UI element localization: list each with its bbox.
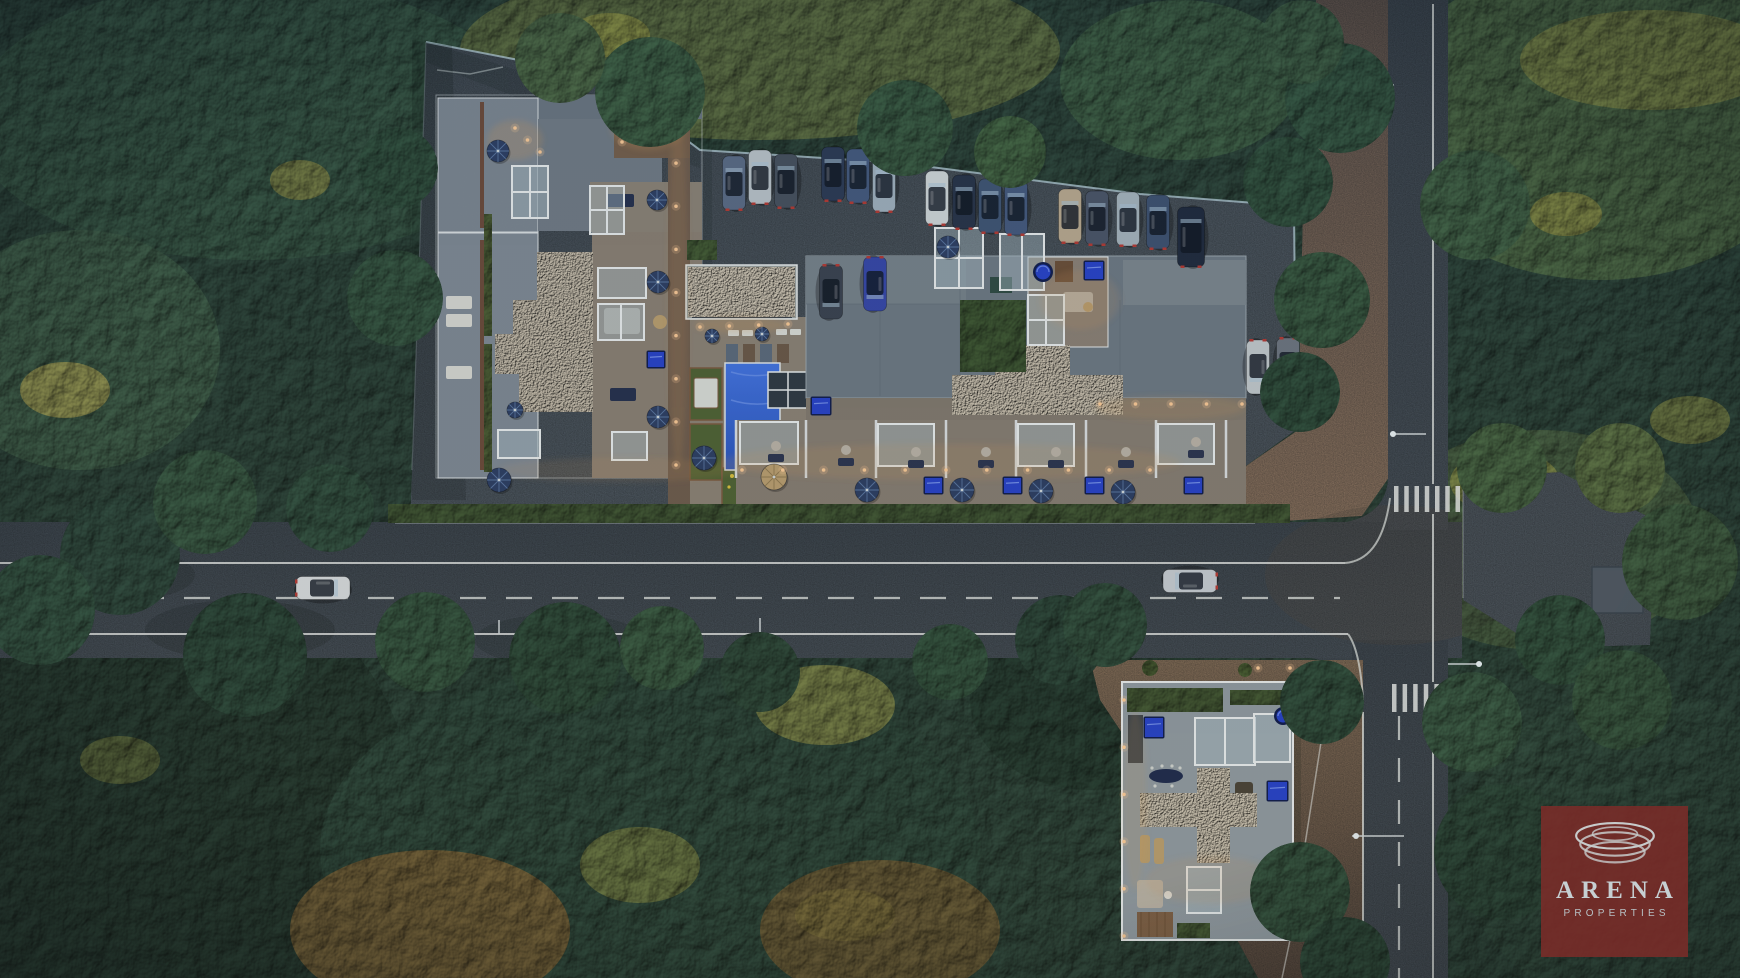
aerial-site-render — [0, 0, 1740, 978]
brand-name: ARENA — [1549, 878, 1680, 903]
vignette — [0, 0, 1740, 978]
brand-tagline: PROPERTIES — [1559, 909, 1669, 919]
arena-rings-icon — [1569, 818, 1661, 872]
aerial-development-render: ARENA PROPERTIES — [0, 0, 1740, 978]
logo-watermark: ARENA PROPERTIES — [1541, 806, 1688, 957]
